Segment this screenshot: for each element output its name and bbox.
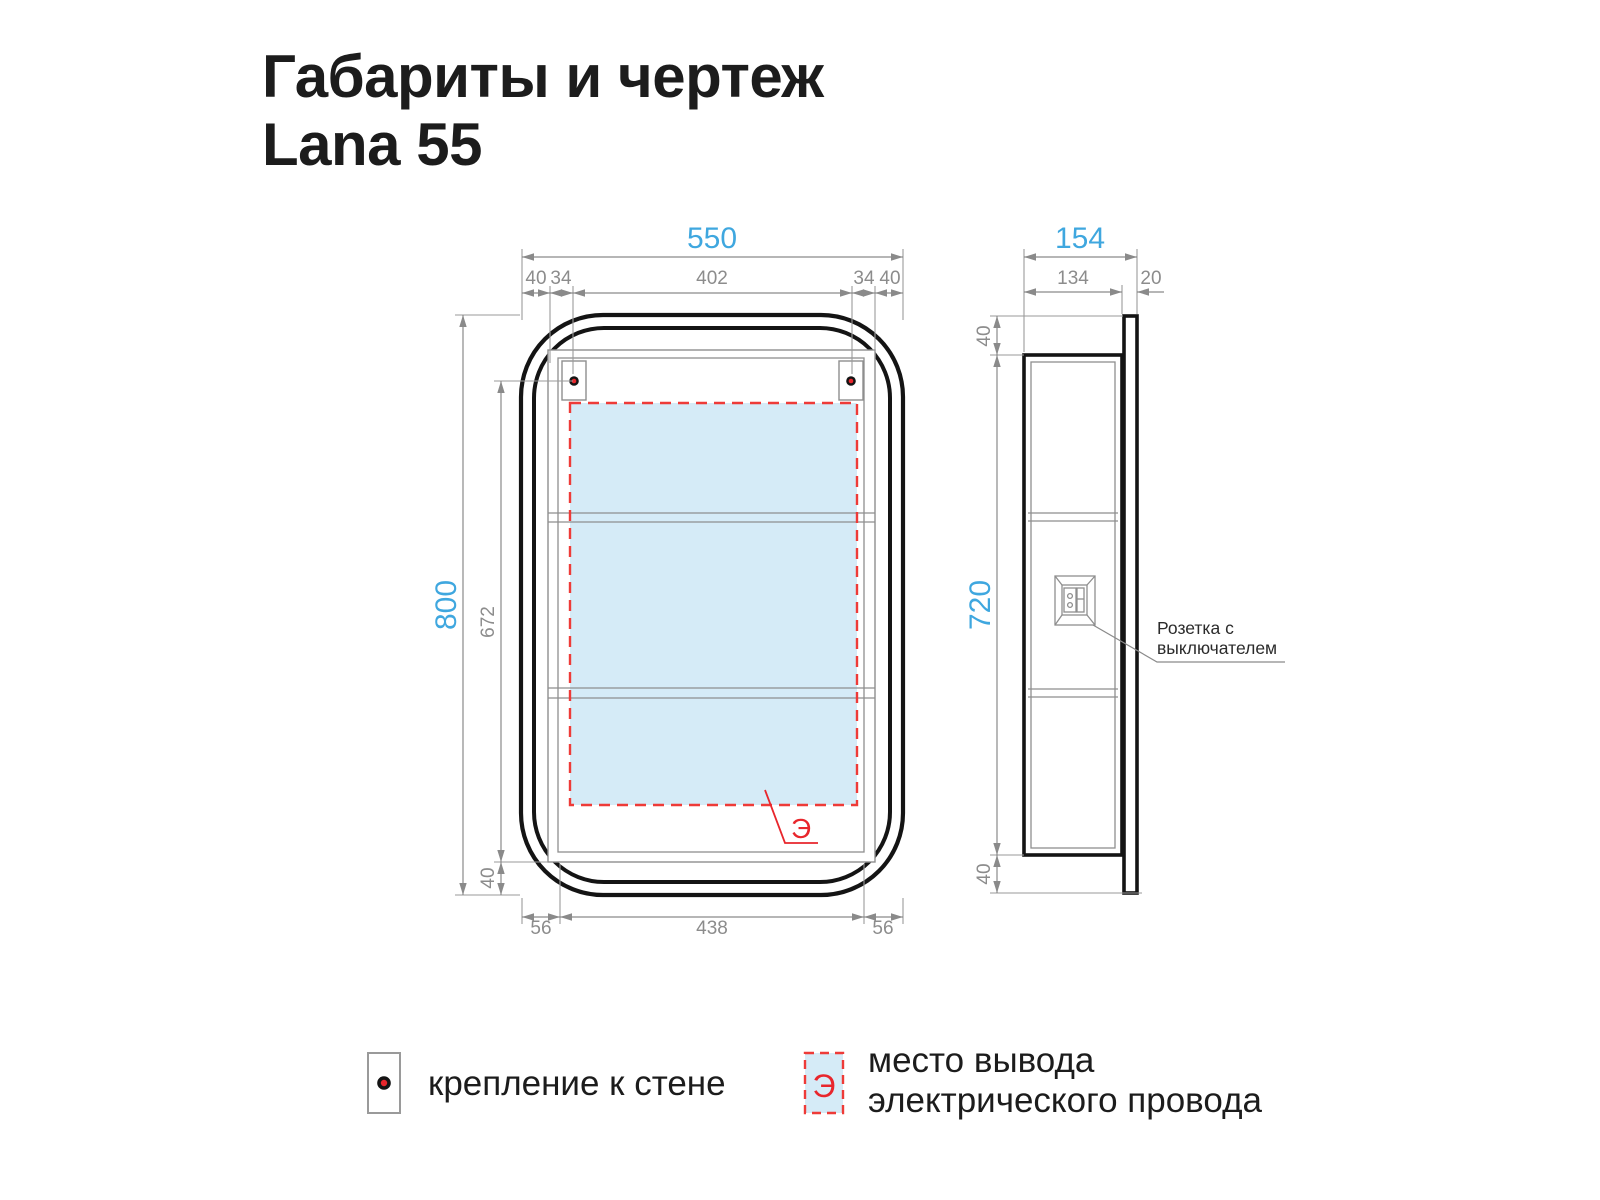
dim-front-top-bracket-right: 34 xyxy=(853,268,875,289)
front-view: Э 550 40 34 402 34 40 xyxy=(430,222,903,939)
socket-icon xyxy=(1055,576,1095,625)
legend-electric-label-line-1: место вывода xyxy=(868,1041,1095,1080)
electric-zone-fill xyxy=(570,403,857,805)
dim-front-height-inner: 672 xyxy=(478,606,499,638)
dim-front-top-center: 402 xyxy=(696,268,728,289)
dim-side-bottom-offset: 40 xyxy=(974,863,995,884)
dim-front-bottom-center: 438 xyxy=(696,918,728,939)
legend: крепление к стене Э место вывода электри… xyxy=(368,1041,1262,1120)
electric-mark-label: Э xyxy=(791,813,811,844)
dim-side-depth-door: 20 xyxy=(1140,268,1161,289)
legend-electric-item: Э место вывода электрического провода xyxy=(805,1041,1262,1120)
dim-front-width-total: 550 xyxy=(687,222,737,255)
side-view: Розетка с выключателем 154 134 20 40 720 xyxy=(964,222,1285,893)
title-line-1: Габариты и чертеж xyxy=(262,43,825,110)
dim-front-top-margin-right: 40 xyxy=(879,268,900,289)
page-title: Габариты и чертеж Lana 55 xyxy=(262,43,825,178)
technical-drawing: Габариты и чертеж Lana 55 xyxy=(0,0,1600,1200)
dim-side-top-offset: 40 xyxy=(974,325,995,346)
dim-side-depth-total: 154 xyxy=(1055,222,1105,255)
side-dimensions-top: 154 134 20 xyxy=(1024,222,1164,352)
legend-mount-item: крепление к стене xyxy=(368,1053,726,1113)
dim-front-bottom-left: 56 xyxy=(530,918,551,939)
legend-mount-label: крепление к стене xyxy=(428,1064,726,1103)
title-line-2: Lana 55 xyxy=(262,111,482,178)
drawing-page: Габариты и чертеж Lana 55 xyxy=(0,0,1600,1200)
dim-front-height-bottom: 40 xyxy=(478,867,499,888)
dim-front-top-margin-left: 40 xyxy=(525,268,546,289)
mount-dot-right-center xyxy=(849,379,854,384)
dim-front-height-total: 800 xyxy=(430,580,463,630)
legend-electric-label-line-2: электрического провода xyxy=(868,1081,1262,1120)
legend-mount-dot-center xyxy=(381,1080,387,1086)
dim-front-bottom-right: 56 xyxy=(872,918,893,939)
socket-label-line-1: Розетка с xyxy=(1157,618,1234,638)
socket-label-line-2: выключателем xyxy=(1157,638,1277,658)
legend-electric-symbol: Э xyxy=(813,1068,836,1104)
dim-side-depth-body: 134 xyxy=(1057,268,1089,289)
dim-front-top-bracket-left: 34 xyxy=(550,268,572,289)
side-door-panel xyxy=(1124,316,1137,893)
dim-side-body-height: 720 xyxy=(964,580,997,630)
